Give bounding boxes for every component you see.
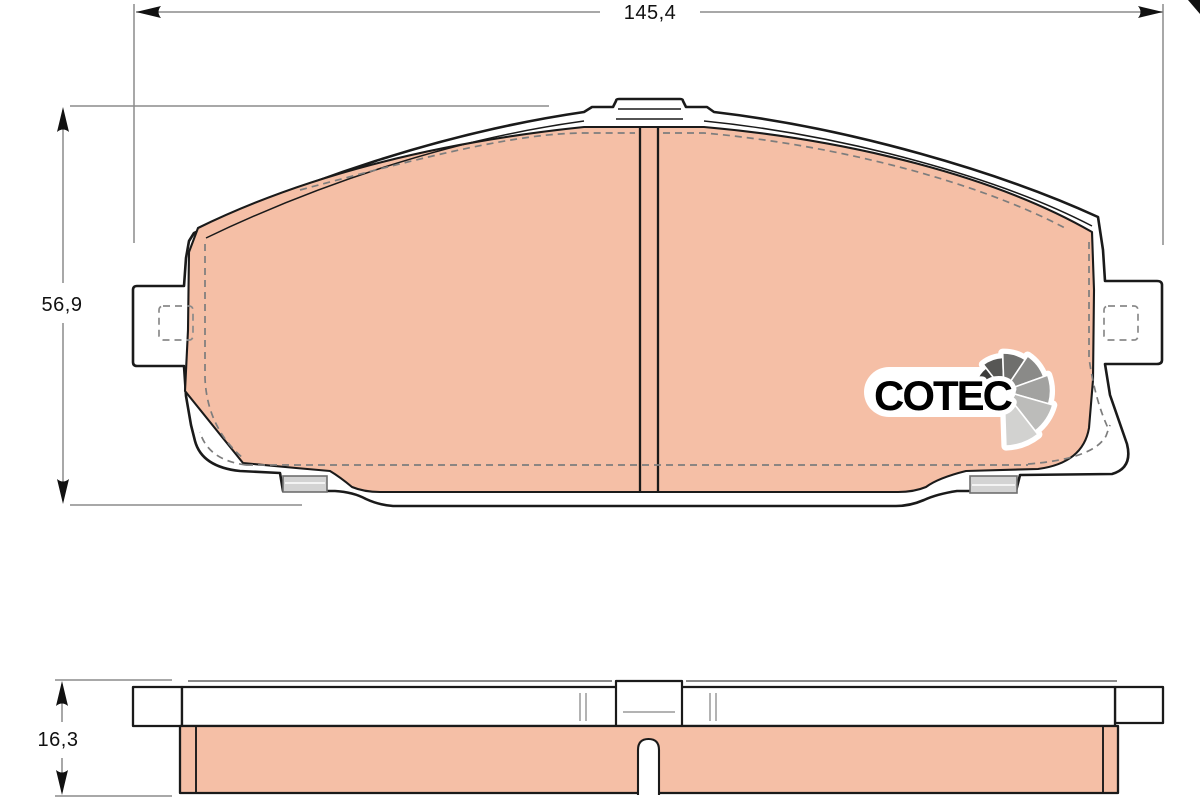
side-groove-cutout [638,739,659,795]
side-center-tab [616,681,682,726]
arrowhead-down [56,770,68,795]
brake-pad-technical-drawing: COTEC 145,4 56,9 16,3 [0,0,1200,800]
side-left-ear [133,687,182,726]
logo-wordmark: COTEC [874,372,1013,419]
dimension-height-value: 56,9 [42,294,83,316]
arrowhead-down [57,479,69,504]
corner-crop-artifact [1188,0,1200,14]
dimension-width-value: 145,4 [624,2,677,24]
arrowhead-right [1138,6,1163,18]
side-right-ear [1115,687,1163,723]
side-view [133,681,1163,795]
dimension-thickness-value: 16,3 [38,729,79,751]
arrowhead-up [57,107,69,132]
arrowhead-up [56,681,68,706]
arrowhead-left [136,6,161,18]
drawing-canvas: COTEC 145,4 56,9 16,3 [0,0,1200,800]
